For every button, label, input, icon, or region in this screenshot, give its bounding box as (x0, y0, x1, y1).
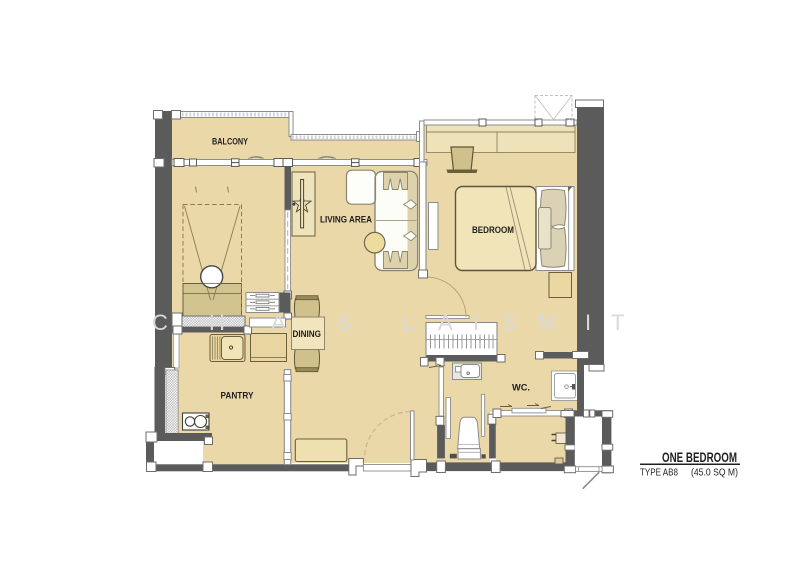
svg-text:L: L (402, 310, 414, 335)
svg-text:TYPE AB8: TYPE AB8 (640, 467, 678, 479)
svg-text:T: T (611, 310, 624, 335)
svg-text:M: M (538, 310, 556, 335)
svg-text:PANTRY: PANTRY (221, 391, 254, 401)
svg-text:WC.: WC. (512, 383, 530, 394)
svg-text:BALCONY: BALCONY (212, 137, 248, 147)
svg-text:I: I (473, 310, 479, 335)
svg-text:A: A (271, 310, 286, 335)
svg-text:A: A (438, 310, 453, 335)
svg-text:S: S (337, 310, 352, 335)
svg-text:BEDROOM: BEDROOM (472, 225, 514, 236)
svg-text:S: S (502, 310, 517, 335)
svg-text:DINING: DINING (293, 329, 322, 340)
svg-text:I: I (585, 310, 591, 335)
svg-text:H: H (209, 310, 225, 335)
svg-text:ONE BEDROOM: ONE BEDROOM (662, 450, 737, 465)
svg-text:LIVING AREA: LIVING AREA (320, 215, 372, 226)
svg-text:C: C (152, 310, 168, 335)
svg-text:(45.0 SQ M): (45.0 SQ M) (691, 467, 738, 479)
